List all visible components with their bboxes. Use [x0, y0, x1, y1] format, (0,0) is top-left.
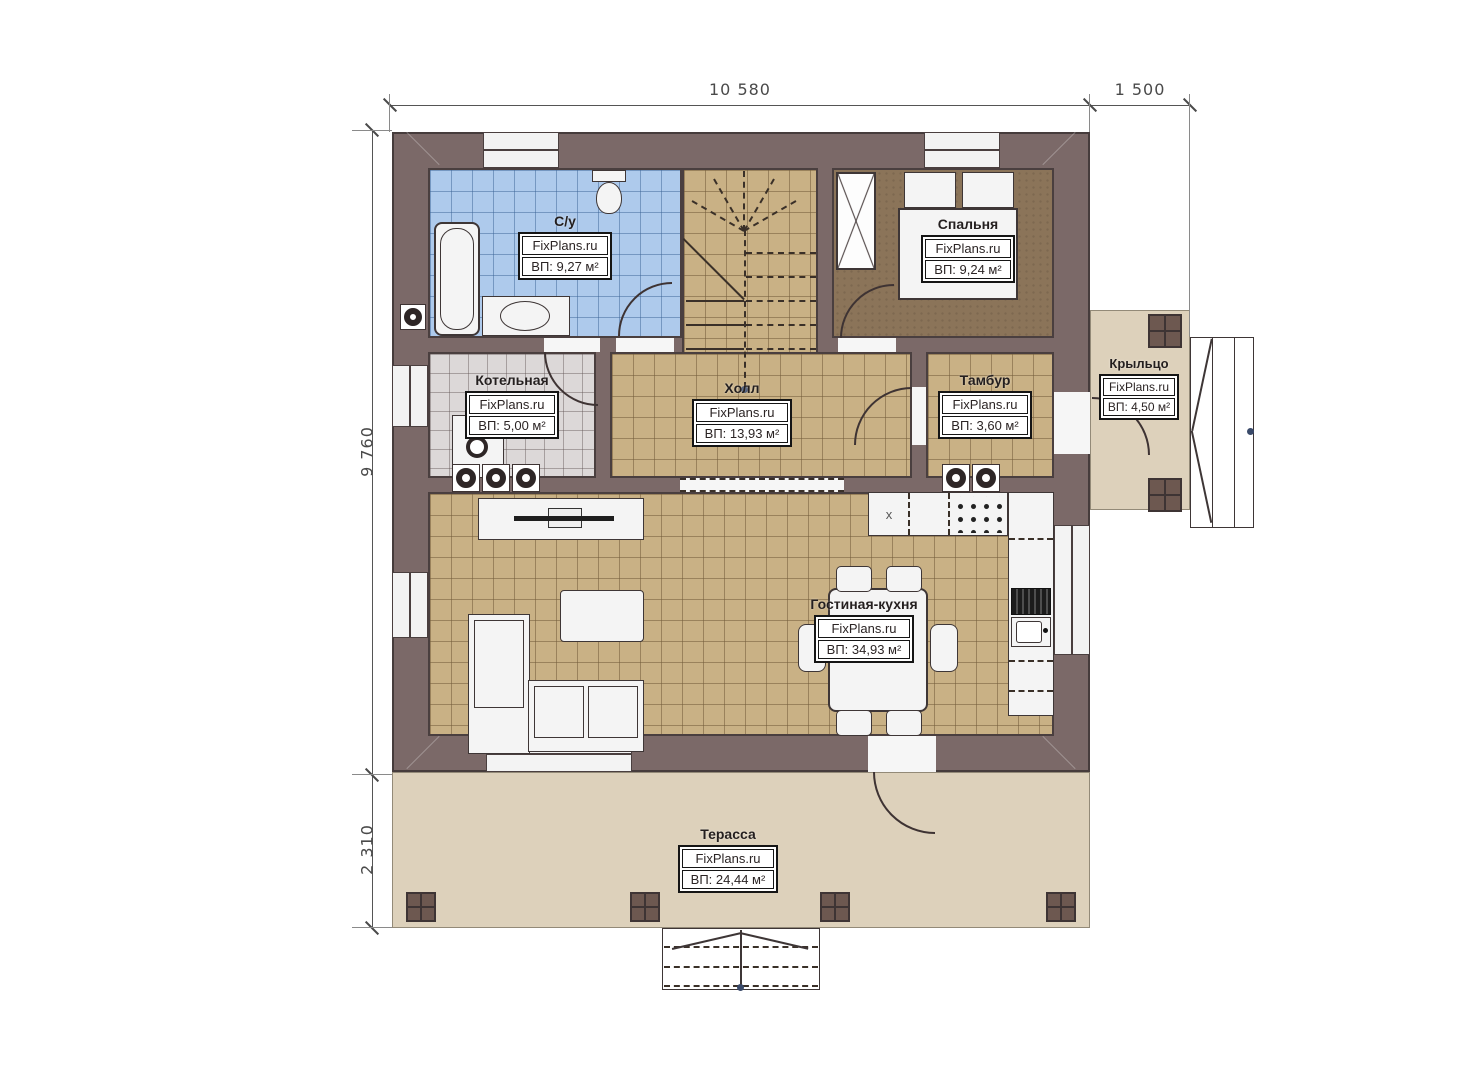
room-area: ВП: 34,93 м² [818, 640, 911, 659]
porch-step-marker [1247, 428, 1254, 435]
terrace-post [1046, 892, 1076, 922]
toilet-tank [592, 170, 626, 182]
porch-step-line [1234, 338, 1235, 527]
kitchen-window [1054, 525, 1090, 655]
utility-ring [452, 464, 480, 492]
dim-width-porch: 1 500 [1090, 80, 1190, 99]
room-info-box: FixPlans.ru ВП: 24,44 м² [678, 845, 779, 893]
room-info-box: FixPlans.ru ВП: 9,24 м² [921, 235, 1014, 283]
watermark: FixPlans.ru [818, 619, 911, 638]
living-left-window [392, 572, 428, 638]
room-info-box: FixPlans.ru ВП: 13,93 м² [692, 399, 793, 447]
room-area: ВП: 4,50 м² [1103, 398, 1175, 416]
room-name: С/у [505, 213, 625, 229]
utility-ring [972, 464, 1000, 492]
dim-width-main: 10 580 [660, 80, 820, 99]
utility-ring [482, 464, 510, 492]
terrace-door-opening [868, 736, 936, 772]
terrace-step-center-line [740, 930, 742, 988]
pillow [962, 172, 1014, 208]
room-area: ВП: 13,93 м² [696, 424, 789, 443]
extension-line [1089, 94, 1090, 132]
toilet-bowl [596, 182, 622, 214]
kitchen-faucet [1043, 628, 1048, 633]
bedroom-door-arc [840, 284, 894, 338]
room-name: Тамбур [925, 372, 1045, 388]
bedroom-door-opening [838, 338, 896, 352]
bedroom-window [924, 132, 1000, 168]
room-label-bathroom: С/у FixPlans.ru ВП: 9,27 м² [505, 213, 625, 280]
porch-step-line [1212, 338, 1213, 527]
sofa-cushion [534, 686, 584, 738]
extension-line [352, 927, 392, 928]
extension-line [352, 130, 392, 131]
kitchen-appliance-x: x [872, 496, 906, 532]
shaft-closet [836, 172, 876, 270]
boiler-window [392, 365, 428, 427]
room-info-box: FixPlans.ru ВП: 3,60 м² [938, 391, 1031, 439]
room-name: Гостиная-кухня [794, 596, 934, 612]
vestibule-door-opening [912, 387, 926, 445]
room-info-box: FixPlans.ru ВП: 34,93 м² [814, 615, 915, 663]
bathroom-door-arc [618, 282, 672, 336]
room-label-terrace: Терасса FixPlans.ru ВП: 24,44 м² [658, 826, 798, 893]
room-area: ВП: 9,24 м² [925, 260, 1010, 279]
bathtub-inner [440, 228, 474, 330]
dimension-line-top [390, 105, 1190, 106]
terrace-post [820, 892, 850, 922]
porch-post [1148, 478, 1182, 512]
room-info-box: FixPlans.ru ВП: 9,27 м² [518, 232, 611, 280]
dining-chair [886, 566, 922, 592]
room-label-hall: Холл FixPlans.ru ВП: 13,93 м² [682, 380, 802, 447]
terrace-post [406, 892, 436, 922]
hall-living-opening [680, 478, 844, 492]
counter-divider [1009, 690, 1053, 692]
utility-ring [942, 464, 970, 492]
terrace-step-marker [737, 984, 744, 991]
floor-plan: x С/у FixPlans.ru ВП: 9,27 м² Спальня F [0, 0, 1473, 1080]
room-name: Крыльцо [1086, 356, 1192, 371]
room-name: Спальня [908, 216, 1028, 232]
extension-line [1189, 94, 1190, 336]
dining-chair [886, 710, 922, 736]
room-name: Холл [682, 380, 802, 396]
staircase [682, 168, 818, 390]
sofa-cushion [588, 686, 638, 738]
bathroom-door-opening [616, 338, 674, 352]
room-area: ВП: 5,00 м² [469, 416, 554, 435]
terrace-door-arc [873, 772, 935, 834]
room-area: ВП: 24,44 м² [682, 870, 775, 889]
room-info-box: FixPlans.ru ВП: 5,00 м² [465, 391, 558, 439]
oven [1011, 588, 1051, 615]
room-name: Котельная [448, 372, 576, 388]
sofa-cushion [474, 620, 524, 708]
porch-steps [1190, 337, 1254, 528]
counter-divider [1009, 660, 1053, 662]
terrace-post [630, 892, 660, 922]
counter-divider [1009, 538, 1053, 540]
pillow [904, 172, 956, 208]
counter-divider [908, 493, 910, 535]
boiler-gauge [466, 436, 488, 458]
room-area: ВП: 3,60 м² [942, 416, 1027, 435]
room-label-boiler: Котельная FixPlans.ru ВП: 5,00 м² [448, 372, 576, 439]
watermark: FixPlans.ru [1103, 378, 1175, 396]
dining-chair [836, 710, 872, 736]
entrance-door-opening [1054, 392, 1090, 454]
coffee-table [560, 590, 644, 642]
room-label-living-kitchen: Гостиная-кухня FixPlans.ru ВП: 34,93 м² [794, 596, 934, 663]
watermark: FixPlans.ru [925, 239, 1010, 258]
kitchen-sink-basin [1016, 621, 1042, 643]
watermark: FixPlans.ru [696, 403, 789, 422]
extension-line [352, 774, 392, 775]
room-label-bedroom: Спальня FixPlans.ru ВП: 9,24 м² [908, 216, 1028, 283]
room-label-porch: Крыльцо FixPlans.ru ВП: 4,50 м² [1086, 356, 1192, 420]
bathroom-sink [500, 301, 550, 331]
boiler-door-opening [544, 338, 600, 352]
room-name: Терасса [658, 826, 798, 842]
dining-chair [836, 566, 872, 592]
dim-height-main: 9 760 [358, 407, 377, 497]
watermark: FixPlans.ru [522, 236, 607, 255]
room-info-box: FixPlans.ru ВП: 4,50 м² [1099, 374, 1179, 420]
bathroom-window [483, 132, 559, 168]
dining-chair [930, 624, 958, 672]
porch-post [1148, 314, 1182, 348]
utility-ring [512, 464, 540, 492]
cooktop-burners [950, 496, 1006, 533]
vestibule-door-arc [854, 387, 912, 445]
watermark: FixPlans.ru [942, 395, 1027, 414]
watermark: FixPlans.ru [682, 849, 775, 868]
wall-outlet-ring [400, 304, 426, 330]
room-area: ВП: 9,27 м² [522, 257, 607, 276]
room-label-vestibule: Тамбур FixPlans.ru ВП: 3,60 м² [925, 372, 1045, 439]
dim-height-terrace: 2 310 [358, 805, 377, 895]
extension-line [389, 94, 390, 132]
watermark: FixPlans.ru [469, 395, 554, 414]
tv [514, 516, 614, 521]
